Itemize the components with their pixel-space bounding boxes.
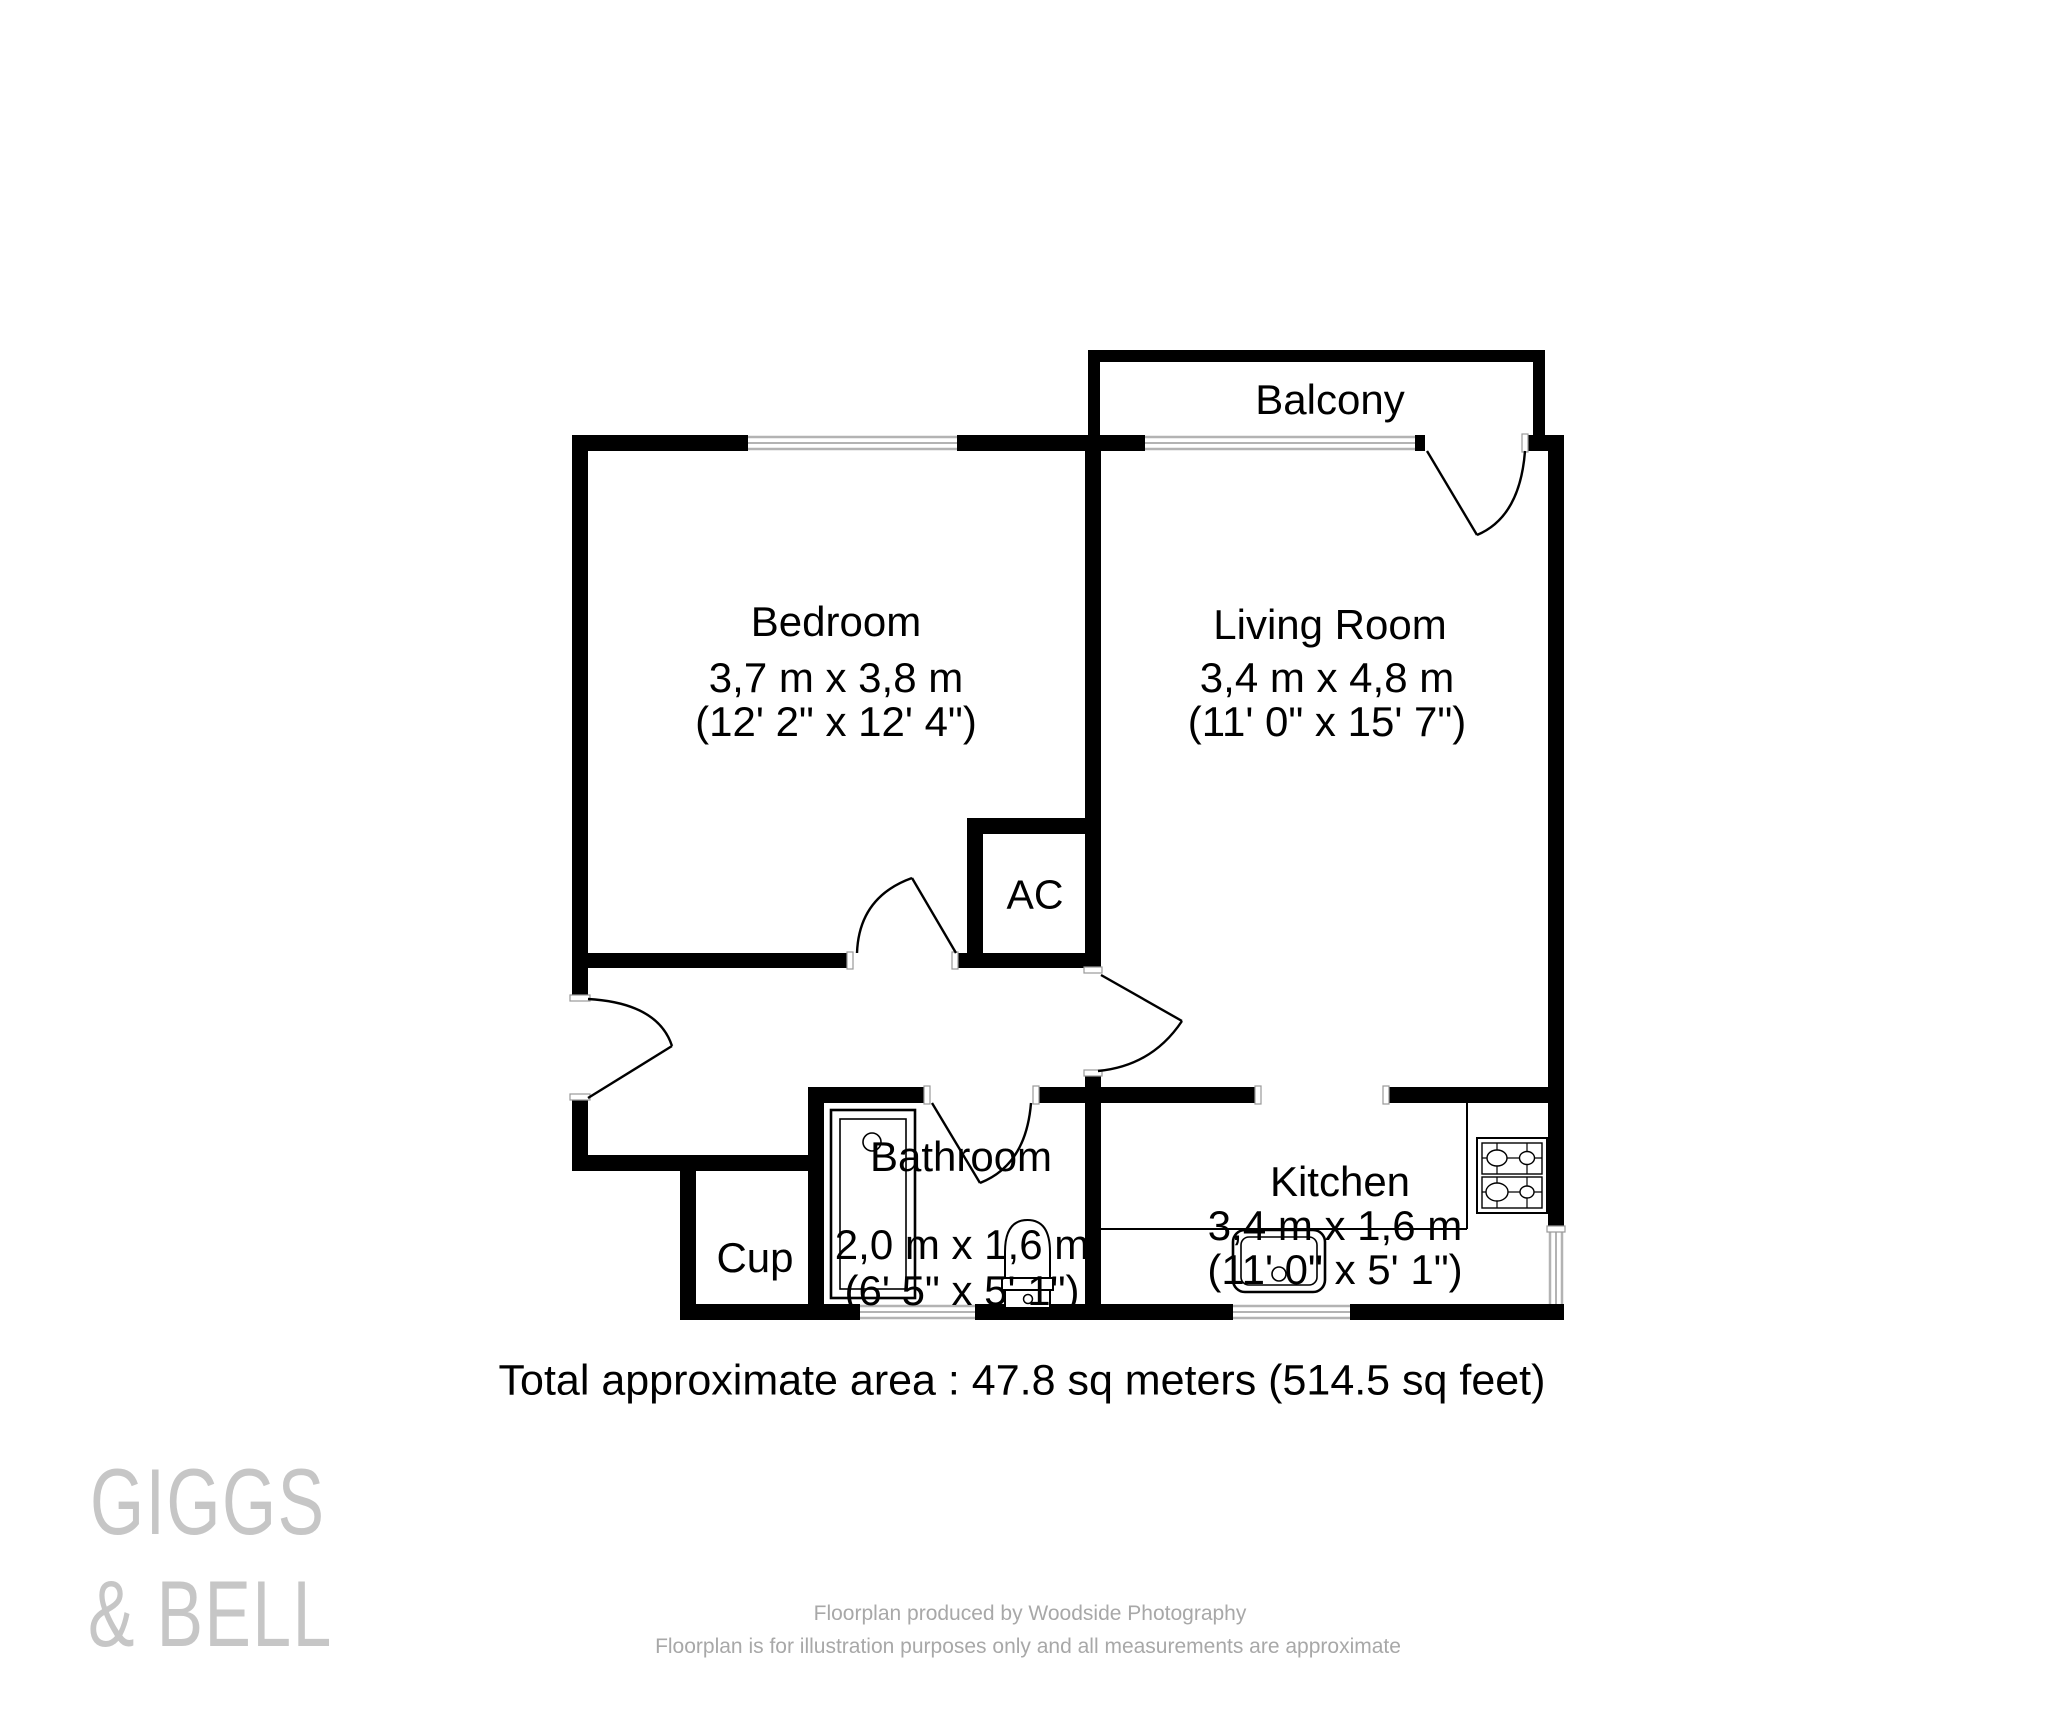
floorplan-page: Balcony Bedroom 3,7 m x 3,8 m (12' 2" x …: [0, 0, 2048, 1725]
wall-partition-upper: [1085, 435, 1101, 968]
wall-balcony-top: [1088, 350, 1545, 362]
wall-bathroom-top-2: [1039, 1087, 1101, 1103]
bedroom-window: [748, 435, 957, 451]
room-dims-metric-living: 3,4 m x 4,8 m: [1200, 657, 1454, 699]
balcony-window: [1145, 435, 1415, 451]
wall-kitchen-top-2: [1389, 1087, 1548, 1103]
room-label-kitchen: Kitchen: [1270, 1161, 1410, 1203]
wall-top-1: [572, 435, 748, 451]
room-dims-imperial-kitchen: (11' 0" x 5' 1"): [1207, 1249, 1462, 1291]
agency-logo-line2: & BELL: [88, 1560, 333, 1668]
footer-credit-line1: Floorplan produced by Woodside Photograp…: [814, 1602, 1247, 1626]
jamb-entrance-top: [570, 995, 590, 1001]
room-label-bedroom: Bedroom: [751, 601, 921, 643]
room-label-cup: Cup: [716, 1237, 793, 1279]
wall-cup-left: [680, 1155, 696, 1320]
jamb-entrance-bottom: [570, 1094, 590, 1100]
wall-ac-left: [967, 818, 983, 968]
kitchen-window: [1233, 1304, 1350, 1320]
wall-bathroom-top-1: [808, 1087, 924, 1103]
jamb-sidewindow-top: [1547, 1226, 1565, 1232]
wall-partition-lower: [1085, 1076, 1101, 1320]
wall-bottom-1: [680, 1304, 860, 1320]
agency-logo-line1: GIGGS: [90, 1448, 325, 1556]
doors: [588, 451, 1525, 1183]
room-label-living: Living Room: [1213, 604, 1446, 646]
wall-balcony-right: [1533, 350, 1545, 447]
wall-bottom-3: [1350, 1304, 1564, 1320]
jamb-kitchen-left: [1255, 1086, 1261, 1104]
stove-icon: [1477, 1138, 1547, 1213]
footer-disclaimer-line2: Floorplan is for illustration purposes o…: [655, 1635, 1401, 1659]
balcony-door-icon: [1427, 451, 1525, 535]
jamb-balcony-right: [1522, 434, 1528, 452]
wall-top-2: [957, 435, 1145, 451]
room-label-ac: AC: [1007, 875, 1064, 916]
room-dims-imperial-bathroom: (6' 5" x 5' 1"): [845, 1270, 1080, 1312]
room-label-bathroom: Bathroom: [870, 1136, 1052, 1178]
walls: [572, 350, 1564, 1320]
entrance-door-icon: [588, 999, 672, 1098]
room-dims-metric-bathroom: 2,0 m x 1,6 m: [835, 1224, 1089, 1266]
jamb-bedroom-left: [847, 952, 853, 969]
wall-right: [1548, 435, 1564, 1232]
room-dims-metric-kitchen: 3,4 m x 1,6 m: [1208, 1205, 1462, 1247]
wall-ac-top: [967, 818, 1101, 834]
wall-balcony-left: [1088, 350, 1100, 447]
wall-hall-bottom: [572, 1155, 824, 1171]
room-dims-imperial-living: (11' 0" x 15' 7"): [1188, 701, 1467, 743]
jamb-kitchen-right: [1383, 1086, 1389, 1104]
wall-bathroom-left: [808, 1087, 824, 1304]
wall-top-jamb-black: [1415, 435, 1425, 451]
jamb-bathroom-left: [924, 1086, 930, 1104]
wall-bedroom-bottom-1: [572, 953, 853, 968]
kitchen-side-window: [1548, 1232, 1564, 1304]
jamb-living-top: [1084, 967, 1102, 973]
bedroom-door-icon: [857, 878, 956, 953]
jamb-bathroom-right: [1033, 1086, 1039, 1104]
room-dims-metric-bedroom: 3,7 m x 3,8 m: [709, 657, 963, 699]
wall-left-upper: [572, 435, 588, 996]
wall-kitchen-top-1: [1101, 1087, 1255, 1103]
total-area-caption: Total approximate area : 47.8 sq meters …: [499, 1360, 1546, 1403]
jamb-bedroom-right: [952, 952, 958, 969]
room-dims-imperial-bedroom: (12' 2" x 12' 4"): [695, 701, 977, 743]
living-room-door-icon: [1098, 975, 1182, 1071]
room-label-balcony: Balcony: [1255, 379, 1404, 421]
